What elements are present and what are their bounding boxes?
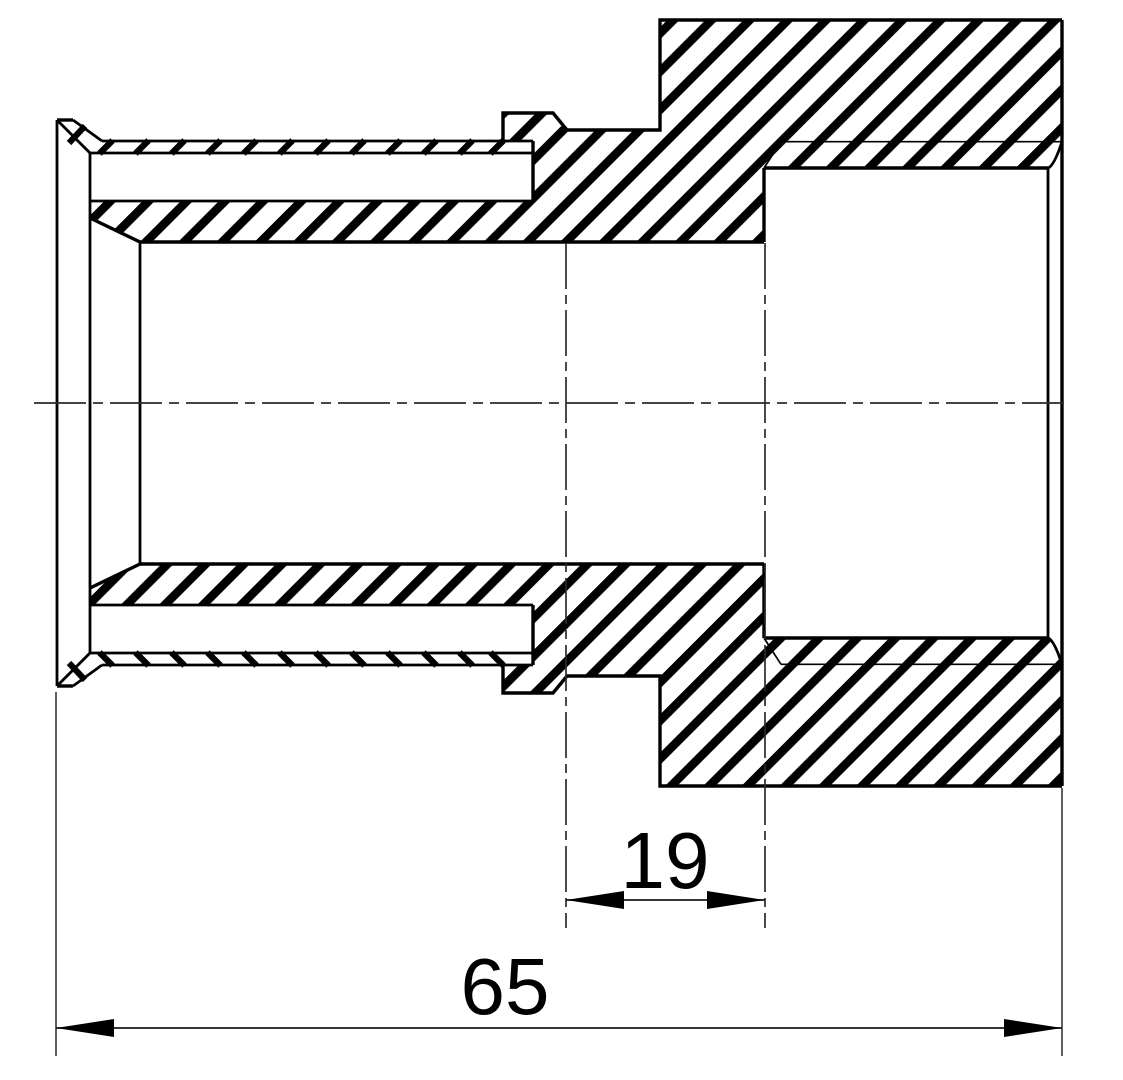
dimension-label-19: 19	[621, 816, 710, 905]
arrowhead-left-icon	[566, 891, 624, 909]
fitting-section-view: 19 65	[0, 0, 1123, 1080]
arrowhead-right-icon	[1004, 1019, 1062, 1037]
arrowhead-left-icon	[56, 1019, 114, 1037]
arrowhead-right-icon	[707, 891, 765, 909]
technical-drawing-page: 19 65	[0, 0, 1123, 1080]
dimension-label-65: 65	[461, 942, 550, 1031]
